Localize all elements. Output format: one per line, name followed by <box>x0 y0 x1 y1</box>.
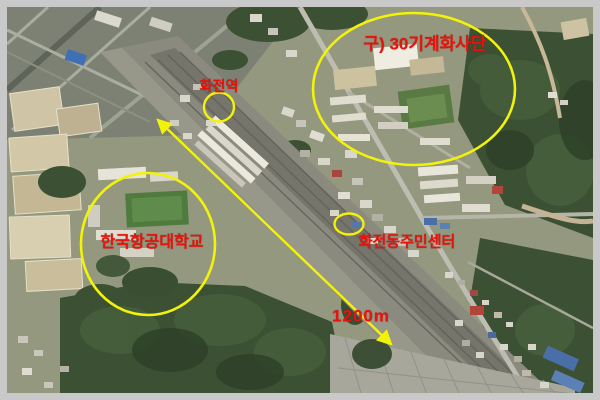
label-aerospace-university: 한국항공대학교 <box>100 235 203 251</box>
image-frame: 구) 30기계화사단 화전역 한국항공대학교 화전동주민센터 1200m <box>0 0 600 400</box>
satellite-map: 구) 30기계화사단 화전역 한국항공대학교 화전동주민센터 1200m <box>7 7 593 393</box>
highlight-circle-community-center <box>335 214 364 235</box>
annotation-overlay <box>7 7 593 393</box>
label-distance-1200m: 1200m <box>332 308 390 325</box>
label-hwajeon-station: 화전역 <box>200 79 239 93</box>
highlight-circle-station <box>204 93 234 122</box>
label-community-center: 화전동주민센터 <box>359 235 456 250</box>
label-mechanized-division: 구) 30기계화사단 <box>363 36 486 53</box>
